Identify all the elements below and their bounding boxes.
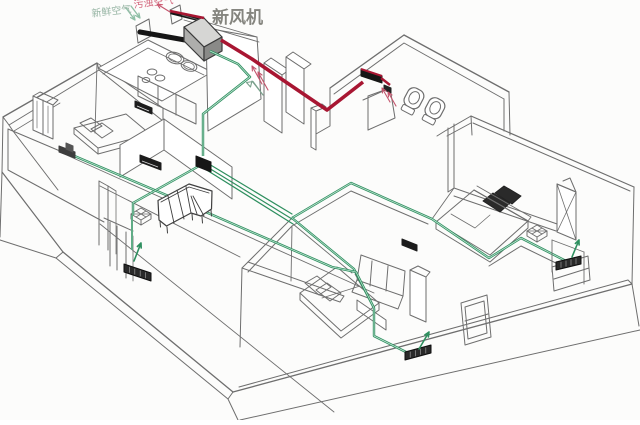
- svg-text:新风机: 新风机: [212, 7, 263, 27]
